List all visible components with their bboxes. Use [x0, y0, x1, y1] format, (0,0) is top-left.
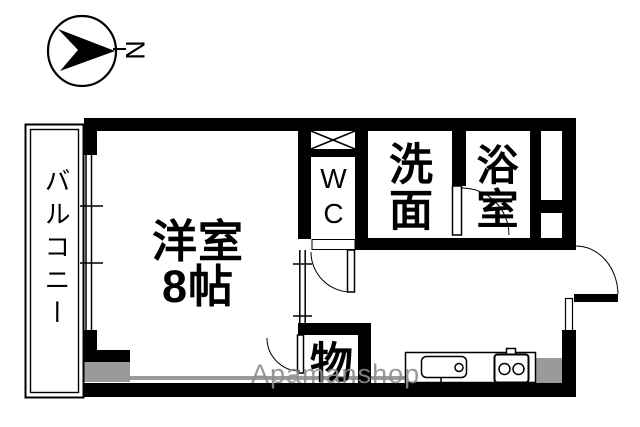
compass-north-label: N — [121, 36, 149, 64]
wc-door-arc — [311, 252, 351, 292]
stove-burner-right — [513, 364, 524, 375]
wc-label: WC — [318, 163, 348, 233]
wall-outer-left-upper — [84, 118, 97, 155]
watermark: Apamanshop — [251, 359, 420, 390]
wall-bathroom-right — [530, 131, 541, 239]
entrance-sidelight-window — [566, 299, 573, 332]
floorplan-canvas: N バルコニー 洋室 8帖 WC 洗面 浴室 物 Apamanshop — [0, 0, 640, 427]
wall-wet-area-bottom — [355, 238, 576, 250]
wc-doorway-threshold — [312, 240, 355, 250]
wall-outer-right-upper — [562, 118, 576, 246]
bathroom-door-leaf — [453, 186, 462, 235]
balcony-label: バルコニー — [40, 167, 72, 353]
main-room-name: 洋室 — [118, 219, 278, 264]
bathroom-label: 浴室 — [471, 143, 517, 231]
entrance-door-leaf — [574, 294, 618, 302]
stove-burner-left — [499, 364, 510, 375]
main-room-label: 洋室 8帖 — [118, 219, 278, 309]
wall-washroom-bathroom — [452, 118, 466, 186]
entrance-door-arc — [576, 246, 618, 294]
wall-shaft-divider — [530, 200, 562, 213]
washroom-label: 洗面 — [382, 141, 430, 233]
wall-outer-top — [84, 118, 576, 131]
main-room-size: 8帖 — [118, 264, 278, 309]
wall-room-wc — [298, 131, 311, 239]
sink-faucet-icon — [455, 364, 463, 372]
wall-wc-washroom — [355, 118, 368, 250]
compass-arrow — [58, 29, 115, 71]
wc-door-leaf — [348, 250, 355, 292]
wall-corner-bottom-left — [84, 350, 130, 362]
wall-outer-right-lower — [562, 330, 576, 397]
